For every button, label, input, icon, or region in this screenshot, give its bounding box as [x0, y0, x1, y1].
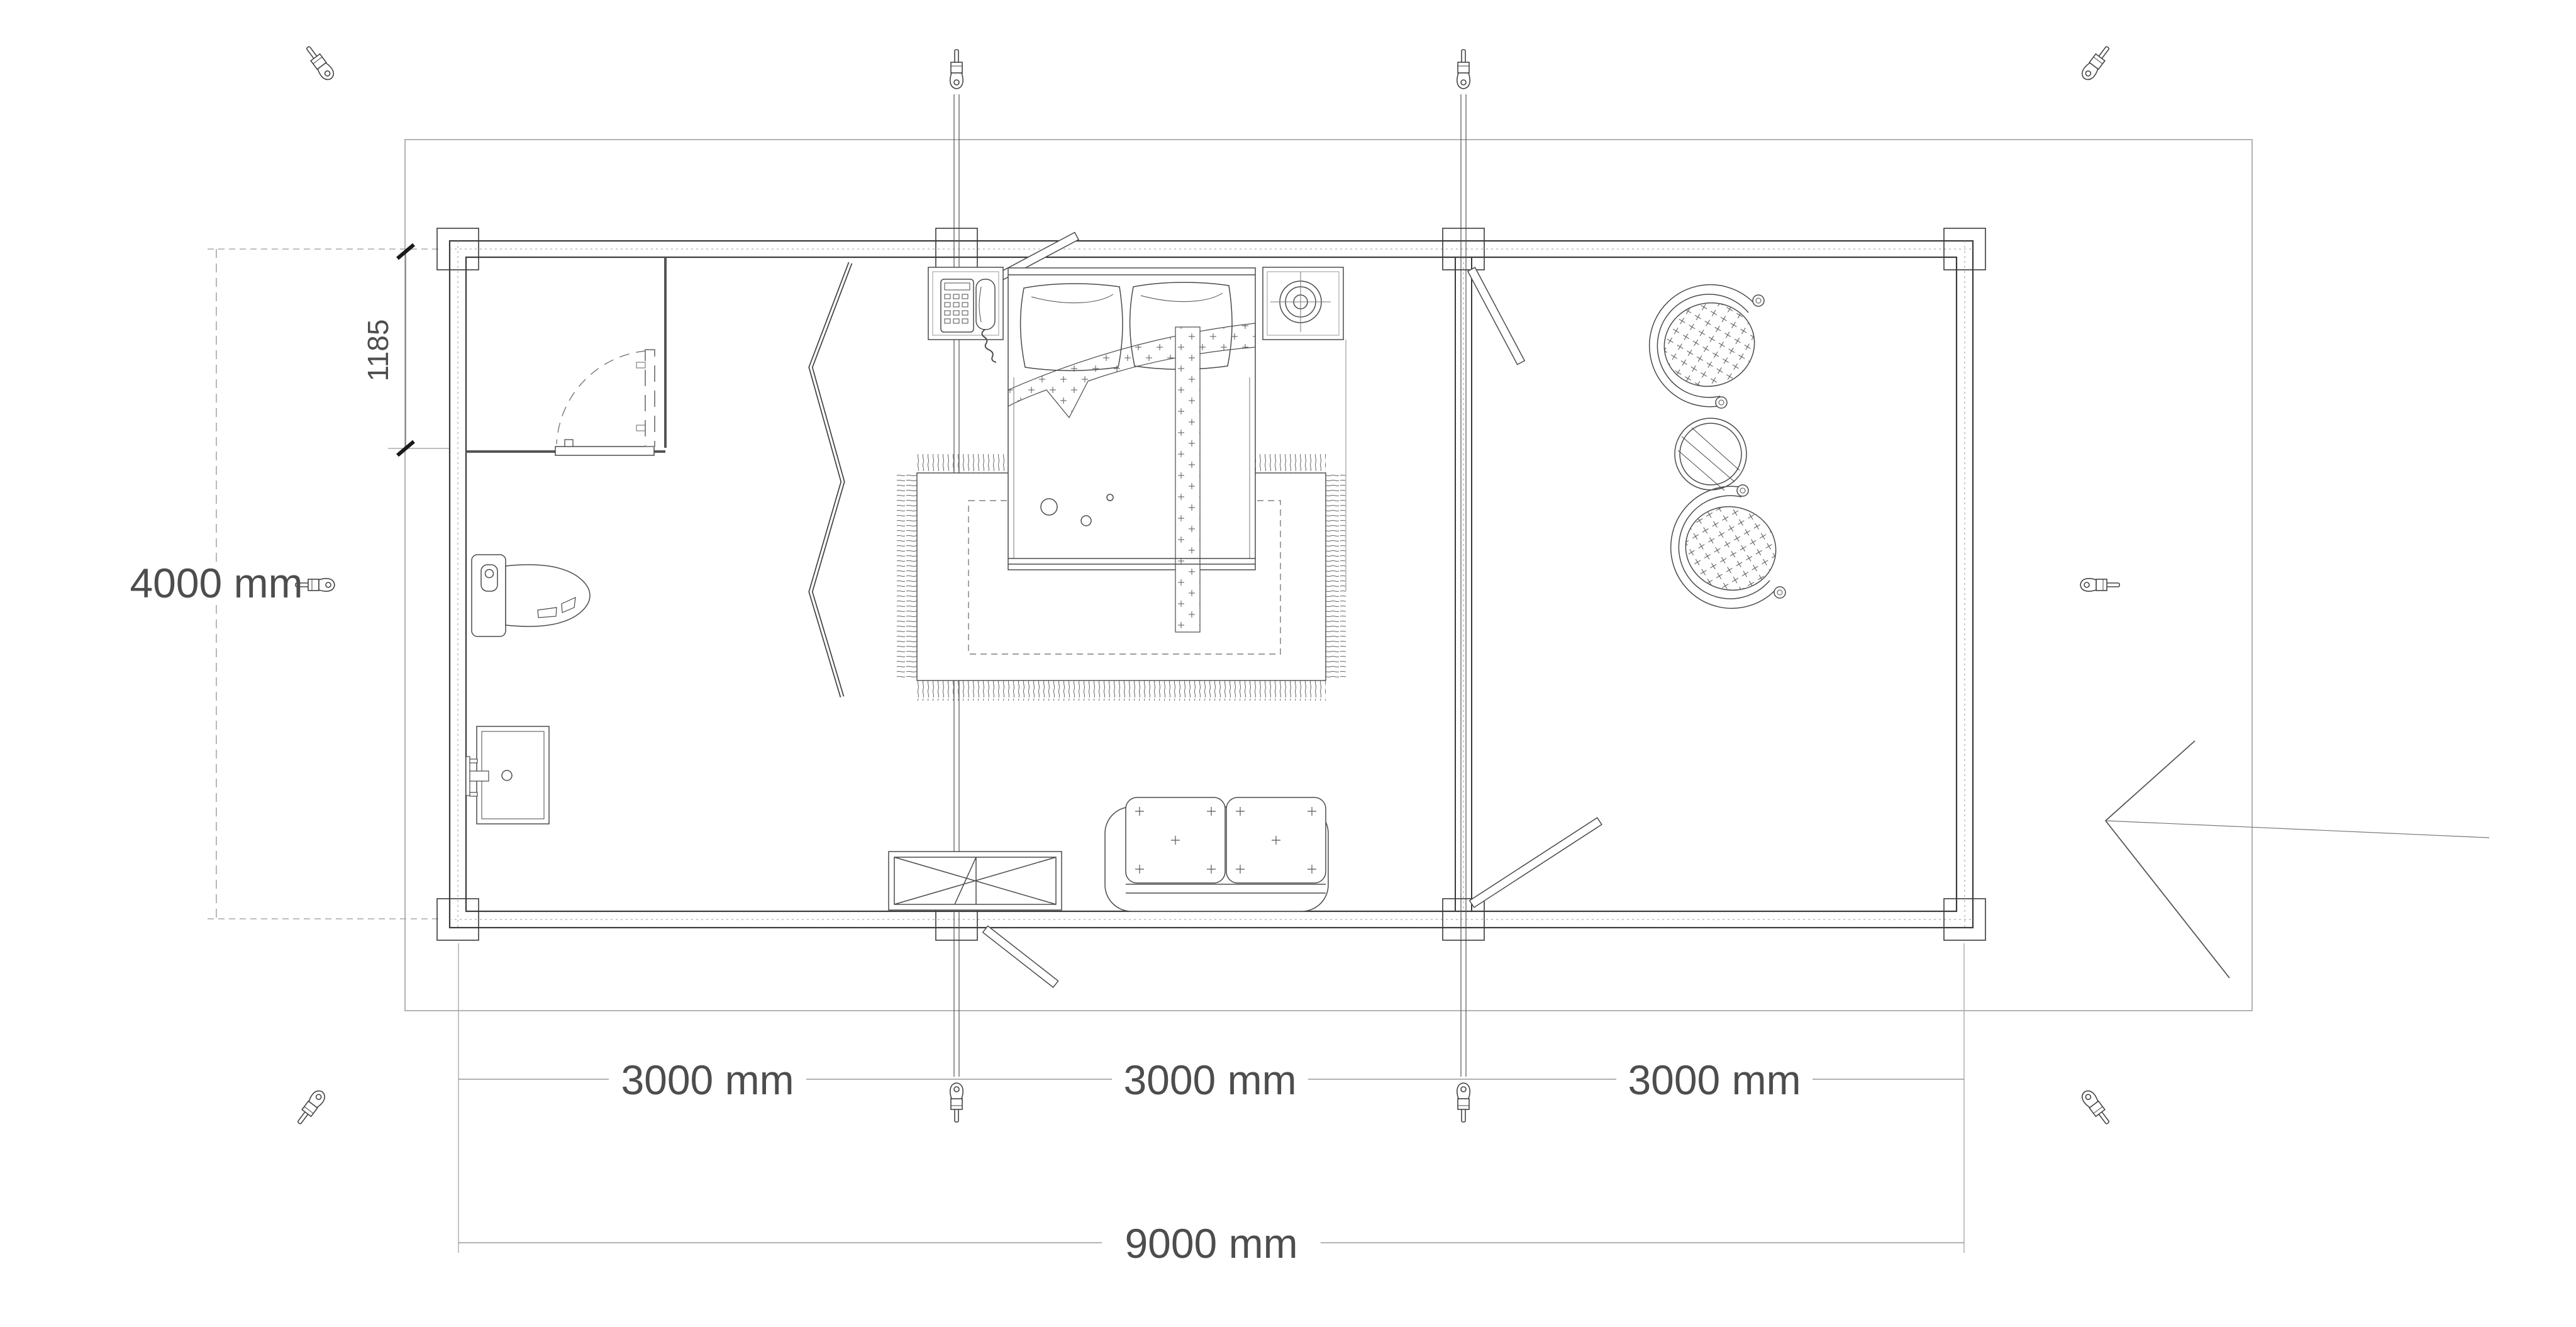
floor-plan-sheet: 4000 mm 1185 3000 mm 3000 mm 3000 mm 900…	[0, 0, 2576, 1327]
floor-plan-drawing: 4000 mm 1185 3000 mm 3000 mm 3000 mm 900…	[0, 0, 2576, 1327]
dimension-label-segment-3: 3000 mm	[1628, 1057, 1801, 1103]
dimension-label-segment-2: 3000 mm	[1123, 1057, 1296, 1103]
dimension-label-bathroom-offset: 1185	[362, 319, 394, 382]
nightstand-lamp-icon	[1263, 267, 1343, 340]
dimension-label-total-width: 9000 mm	[1124, 1220, 1297, 1267]
loveseat-sofa-icon	[1105, 797, 1328, 911]
dimension-label-height: 4000 mm	[130, 560, 303, 606]
dimension-label-segment-1: 3000 mm	[621, 1057, 794, 1103]
door-leaf-closed	[555, 447, 654, 455]
dimension-line-bathroom-offset	[397, 245, 414, 455]
storage-box-icon	[889, 852, 1062, 910]
entrance-arrow-icon	[2106, 741, 2489, 978]
door-handle	[565, 440, 573, 447]
sink-vanity-icon	[466, 726, 549, 824]
